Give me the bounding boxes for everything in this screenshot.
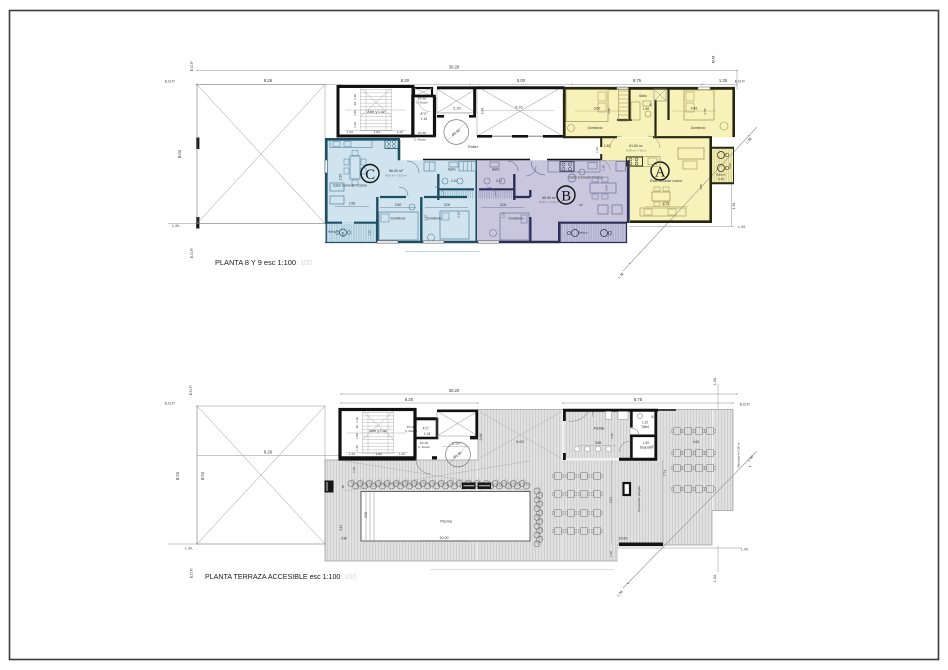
- svg-text:8.04: 8.04: [177, 149, 182, 158]
- svg-text:L.M.: L.M.: [713, 377, 717, 384]
- svg-text:2.85: 2.85: [610, 433, 614, 439]
- svg-text:L.M.: L.M.: [185, 547, 192, 551]
- svg-text:Baño: Baño: [448, 168, 456, 172]
- svg-text:.90: .90: [649, 103, 653, 107]
- svg-text:Aire y Luz: Aire y Luz: [367, 109, 385, 114]
- svg-text:4.45: 4.45: [691, 107, 698, 111]
- svg-text:C. Autom: C. Autom: [414, 138, 427, 142]
- svg-text:4.44: 4.44: [339, 525, 343, 531]
- svg-text:8.26: 8.26: [264, 78, 273, 83]
- svg-text:2.60: 2.60: [607, 108, 611, 114]
- svg-text:4.70: 4.70: [663, 202, 670, 206]
- svg-text:E.D.P.: E.D.P.: [190, 248, 194, 258]
- svg-text:1.30: 1.30: [602, 165, 606, 171]
- svg-text:Dormitorio: Dormitorio: [509, 217, 524, 221]
- svg-text:Balcon: Balcon: [578, 231, 588, 235]
- svg-text:2.80: 2.80: [341, 537, 347, 541]
- svg-text:30.20: 30.20: [449, 388, 460, 393]
- svg-text:5.20: 5.20: [515, 106, 522, 110]
- svg-text:L.M.: L.M.: [713, 574, 717, 581]
- svg-text:1.18: 1.18: [421, 117, 427, 121]
- svg-text:2.95: 2.95: [339, 174, 343, 181]
- svg-text:1.20: 1.20: [595, 147, 599, 153]
- svg-text:Balcon: Balcon: [328, 230, 338, 234]
- svg-text:8.20: 8.20: [401, 78, 410, 83]
- svg-text:46.00 m² + 10.00 m²: 46.00 m² + 10.00 m²: [385, 175, 407, 178]
- svg-text:C. Autom: C. Autom: [418, 445, 431, 449]
- svg-text:2.66: 2.66: [479, 434, 483, 441]
- svg-text:8.04: 8.04: [200, 471, 205, 480]
- svg-text:3.00: 3.00: [444, 203, 451, 207]
- svg-text:4.60: 4.60: [693, 440, 700, 444]
- svg-text:1.20: 1.20: [642, 421, 648, 425]
- svg-text:8.75: 8.75: [633, 78, 642, 83]
- svg-text:2.10: 2.10: [451, 179, 457, 183]
- svg-text:8.20: 8.20: [405, 397, 414, 402]
- svg-text:A°C°: A°C°: [421, 112, 429, 116]
- svg-text:5.00: 5.00: [516, 440, 523, 444]
- svg-text:Toilet: Toilet: [641, 425, 649, 429]
- svg-text:.85: .85: [341, 485, 345, 490]
- svg-text:Palier: Palier: [468, 144, 479, 149]
- svg-text:61.60 m²: 61.60 m²: [629, 144, 643, 148]
- svg-text:1.18: 1.18: [424, 432, 430, 436]
- svg-text:1.82: 1.82: [374, 130, 380, 134]
- svg-text:L.M.: L.M.: [741, 548, 748, 552]
- svg-text:1.50: 1.50: [355, 433, 359, 439]
- svg-text:: 100: : 100: [340, 572, 356, 581]
- svg-text:.40: .40: [355, 425, 359, 430]
- svg-text:1.94: 1.94: [732, 203, 736, 210]
- svg-text:E.D.P.: E.D.P.: [165, 402, 175, 406]
- svg-text:3.00: 3.00: [500, 203, 507, 207]
- svg-text:2.20: 2.20: [453, 107, 460, 111]
- svg-text:2.44: 2.44: [605, 185, 609, 191]
- svg-text:1.50: 1.50: [353, 110, 357, 116]
- svg-text:3.19: 3.19: [424, 215, 428, 221]
- svg-text:1.35: 1.35: [606, 231, 610, 237]
- svg-text:5.00: 5.00: [517, 78, 526, 83]
- svg-text:Piscina: Piscina: [440, 520, 452, 524]
- svg-text:3.00: 3.00: [364, 512, 368, 518]
- svg-text:2.60: 2.60: [703, 108, 707, 114]
- svg-text:Aire y Luz: Aire y Luz: [369, 428, 387, 433]
- svg-text:56.00 m²: 56.00 m²: [389, 169, 404, 173]
- svg-text:1.38: 1.38: [368, 230, 372, 236]
- svg-text:1.20: 1.20: [353, 122, 357, 128]
- svg-text:PLANTA TERRAZA ACCESIBLE esc 1: PLANTA TERRAZA ACCESIBLE esc 1:100: [205, 573, 340, 581]
- svg-text:Dormitorio: Dormitorio: [391, 217, 406, 221]
- svg-text:Parrilla: Parrilla: [594, 427, 605, 431]
- svg-text:P.F-60: P.F-60: [418, 131, 426, 135]
- svg-text:8.75: 8.75: [634, 397, 643, 402]
- svg-text:2.50: 2.50: [395, 203, 402, 207]
- svg-text:Estar Comedor Cocina: Estar Comedor Cocina: [333, 184, 367, 188]
- svg-text:65.60 m²: 65.60 m²: [542, 196, 556, 200]
- svg-text:8.26: 8.26: [264, 450, 273, 455]
- svg-text:7.74: 7.74: [663, 470, 667, 476]
- svg-text:1.50: 1.50: [643, 441, 649, 445]
- svg-text:1.38: 1.38: [609, 551, 613, 557]
- svg-text:M.M.: M.M.: [712, 55, 716, 63]
- svg-text:Dormitorio: Dormitorio: [427, 217, 442, 221]
- svg-text:Baranda h=1.00 m: Baranda h=1.00 m: [737, 442, 741, 467]
- svg-text:: 100: : 100: [296, 258, 312, 267]
- svg-text:.90: .90: [651, 415, 655, 419]
- svg-text:A°C°: A°C°: [423, 427, 431, 431]
- svg-text:Dormitorio: Dormitorio: [691, 126, 706, 130]
- svg-text:1.35: 1.35: [341, 231, 345, 237]
- svg-text:E.D.P.: E.D.P.: [190, 61, 194, 71]
- svg-text:PLANTA 8 Y 9 esc 1:100: PLANTA 8 Y 9 esc 1:100: [215, 258, 296, 267]
- svg-text:Baño: Baño: [492, 168, 500, 172]
- svg-text:E.D.P.: E.D.P.: [190, 568, 194, 578]
- svg-text:Dormitorio: Dormitorio: [588, 126, 603, 130]
- svg-text:4.94: 4.94: [609, 497, 613, 503]
- svg-text:56.60 m² + 9.00 m²: 56.60 m² + 9.00 m²: [539, 201, 559, 204]
- svg-text:1.35: 1.35: [718, 177, 724, 181]
- svg-text:1.35: 1.35: [719, 78, 728, 83]
- svg-text:L.M.: L.M.: [172, 224, 179, 228]
- svg-text:Estar comedor cocina: Estar comedor cocina: [650, 179, 682, 183]
- svg-text:1.50: 1.50: [604, 144, 610, 148]
- svg-text:1.20: 1.20: [355, 417, 359, 423]
- svg-text:2.95: 2.95: [349, 202, 356, 206]
- svg-text:10.60: 10.60: [619, 537, 628, 541]
- svg-text:.70: .70: [651, 445, 655, 449]
- svg-text:2.66: 2.66: [481, 108, 485, 115]
- svg-text:E.D.P.: E.D.P.: [165, 80, 175, 84]
- svg-text:B: B: [561, 188, 571, 204]
- svg-text:.60: .60: [578, 203, 583, 207]
- svg-text:1.20: 1.20: [347, 130, 353, 134]
- svg-text:E.D.P.: E.D.P.: [735, 80, 745, 84]
- svg-text:E.D.P.: E.D.P.: [189, 385, 193, 395]
- svg-text:1.20: 1.20: [355, 445, 359, 451]
- svg-text:3.19: 3.19: [457, 212, 461, 218]
- svg-text:8.04: 8.04: [175, 471, 180, 480]
- svg-text:3.60: 3.60: [594, 107, 601, 111]
- svg-text:3.00: 3.00: [728, 163, 732, 169]
- svg-text:4.85: 4.85: [699, 184, 703, 190]
- svg-text:L.M.: L.M.: [738, 225, 745, 229]
- svg-text:30.20: 30.20: [449, 65, 460, 70]
- svg-text:1.20: 1.20: [352, 467, 356, 473]
- svg-text:54.00 m² + 7.60 m²: 54.00 m² + 7.60 m²: [626, 150, 646, 153]
- svg-text:1.20: 1.20: [397, 130, 403, 134]
- svg-text:E.D.P.: E.D.P.: [740, 403, 750, 407]
- svg-text:Balcon: Balcon: [716, 173, 726, 177]
- svg-text:3.85: 3.85: [595, 441, 602, 445]
- svg-text:1.20: 1.20: [353, 94, 357, 100]
- svg-text:C: C: [365, 167, 375, 183]
- svg-text:10.00: 10.00: [440, 536, 449, 540]
- svg-text:Proyección pérgola: Proyección pérgola: [637, 486, 641, 512]
- svg-text:Baño: Baño: [639, 94, 647, 98]
- svg-text:.40: .40: [353, 102, 357, 107]
